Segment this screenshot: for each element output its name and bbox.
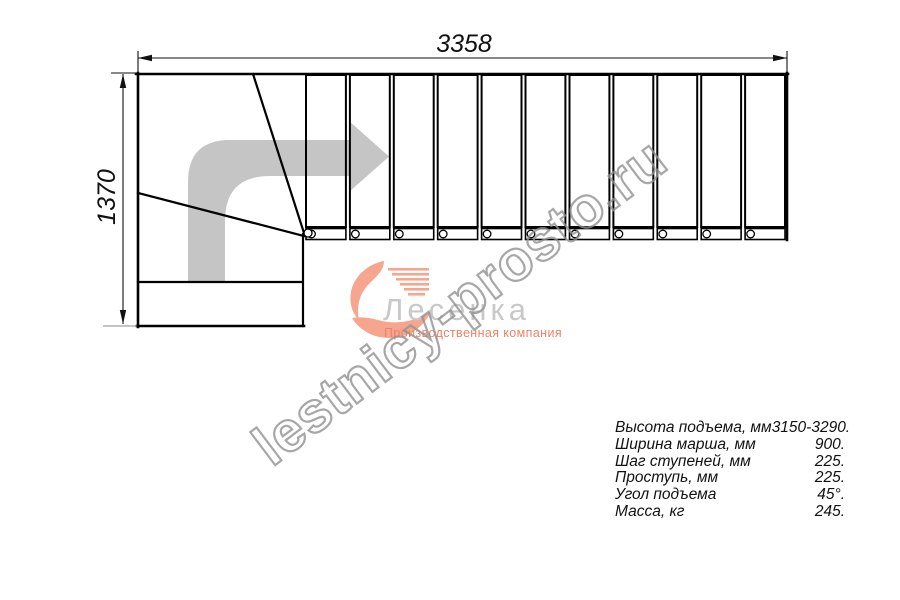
spec-row: Проступь, мм 225. xyxy=(615,470,845,487)
tread-rect xyxy=(394,75,434,227)
spec-value: 45°. xyxy=(817,487,845,504)
spec-label: Угол подъема xyxy=(615,487,716,504)
baluster-circle xyxy=(527,230,535,238)
tread-rect xyxy=(438,75,478,227)
dimension-label-height: 1370 xyxy=(95,168,117,226)
spec-value: 225. xyxy=(815,454,845,471)
dimension-label-width: 3358 xyxy=(428,32,500,57)
direction-arrow-icon xyxy=(188,121,389,282)
spec-row: Ширина марша, мм 900. xyxy=(615,437,845,454)
baluster-circle xyxy=(659,230,667,238)
newel-post-circle xyxy=(304,229,312,237)
tread-rect xyxy=(570,75,610,227)
baluster-circle xyxy=(396,230,404,238)
spec-label: Шаг ступеней, мм xyxy=(615,454,751,471)
spec-label: Масса, кг xyxy=(615,504,684,521)
baluster-circle xyxy=(703,230,711,238)
baluster-circle xyxy=(747,230,755,238)
spec-row: Высота подъема, мм 3150-3290. xyxy=(615,420,845,437)
staircase-drawing-page: Лесенка Производственная компания lestni… xyxy=(0,0,900,600)
spec-row: Масса, кг 245. xyxy=(615,504,845,521)
spec-row: Шаг ступеней, мм 225. xyxy=(615,454,845,471)
baluster-circle xyxy=(571,230,579,238)
tread-rect xyxy=(482,75,522,227)
spec-label: Высота подъема, мм xyxy=(615,420,772,437)
tread-rect xyxy=(526,75,566,227)
baluster-circle xyxy=(352,230,360,238)
spec-label: Ширина марша, мм xyxy=(615,437,756,454)
tread-rect xyxy=(701,75,741,227)
spec-row: Угол подъема 45°. xyxy=(615,487,845,504)
baluster-circle xyxy=(483,230,491,238)
spec-value: 900. xyxy=(815,437,845,454)
baluster-circle xyxy=(439,230,447,238)
spec-value: 245. xyxy=(815,504,845,521)
tread-rect xyxy=(613,75,653,227)
spec-value: 225. xyxy=(815,470,845,487)
tread-rect xyxy=(745,75,785,227)
spec-table: Высота подъема, мм 3150-3290. Ширина мар… xyxy=(615,420,845,521)
spec-label: Проступь, мм xyxy=(615,470,718,487)
spec-value: 3150-3290. xyxy=(772,420,850,437)
baluster-circle xyxy=(615,230,623,238)
tread-rect xyxy=(657,75,697,227)
